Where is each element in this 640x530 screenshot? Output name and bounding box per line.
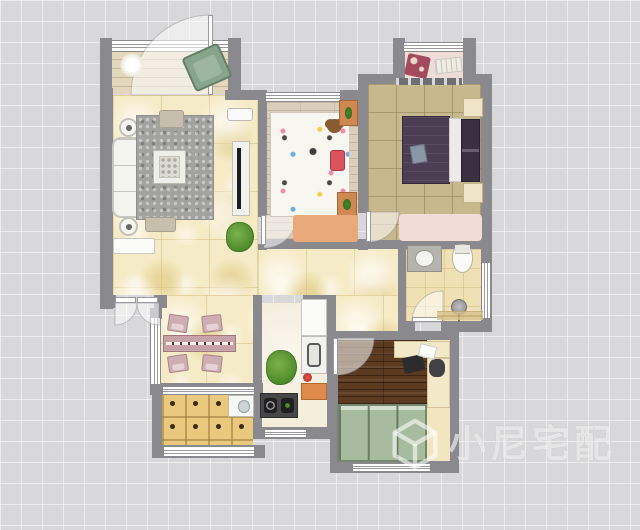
master-bed-pillows bbox=[461, 119, 480, 182]
coffee-table bbox=[153, 150, 186, 184]
dining-chair-4 bbox=[201, 354, 223, 373]
laundry-window bbox=[163, 446, 255, 457]
kids-room-window bbox=[265, 92, 341, 102]
dining-west-window bbox=[150, 317, 161, 385]
wall bbox=[362, 74, 396, 84]
kids-pillow bbox=[330, 150, 345, 171]
wall bbox=[398, 249, 406, 323]
ac-unit bbox=[227, 108, 253, 121]
bathroom-vanity bbox=[407, 245, 442, 272]
master-rug bbox=[399, 214, 482, 241]
ottoman-bottom bbox=[145, 217, 176, 232]
kids-nightstand-top bbox=[339, 100, 358, 126]
watermark-text: 小尼宅配 bbox=[448, 426, 616, 464]
door-leaf bbox=[137, 297, 158, 303]
kitchen-window bbox=[264, 429, 307, 438]
door-leaf bbox=[333, 338, 338, 375]
toilet bbox=[452, 244, 473, 273]
ceiling-light bbox=[120, 53, 144, 77]
door-leaf bbox=[261, 215, 266, 245]
door-swing-arc bbox=[115, 303, 137, 325]
office-chair bbox=[429, 359, 445, 377]
tv-cabinet bbox=[232, 141, 250, 216]
master-nightstand-n bbox=[463, 98, 483, 117]
dining-chair-3 bbox=[167, 354, 189, 374]
master-nightstand-s bbox=[463, 183, 483, 203]
balcony-slider bbox=[162, 386, 255, 395]
door-leaf bbox=[366, 211, 371, 242]
study-window bbox=[352, 463, 431, 472]
dining-chair-2 bbox=[201, 314, 223, 333]
stove bbox=[260, 393, 298, 418]
wall bbox=[450, 331, 459, 473]
dining-table bbox=[163, 335, 236, 352]
kitchen-sink bbox=[301, 336, 327, 374]
wall bbox=[100, 295, 116, 308]
shower-tiles bbox=[437, 311, 483, 320]
wall bbox=[258, 95, 267, 217]
bay-sill bbox=[396, 78, 462, 85]
wardrobe bbox=[337, 404, 427, 462]
book-on-bed bbox=[410, 144, 428, 164]
kids-nightstand-bottom bbox=[337, 192, 357, 217]
floor-plan: 小尼宅配 bbox=[0, 0, 640, 530]
laundry-sink bbox=[228, 395, 254, 417]
dining-chair-1 bbox=[167, 314, 189, 334]
kitchen-cabinet-orange bbox=[301, 383, 327, 400]
kids-rug bbox=[293, 215, 358, 242]
wall bbox=[335, 331, 459, 340]
hallway-floor-2 bbox=[335, 295, 398, 332]
kettle bbox=[303, 373, 312, 382]
ottoman-top bbox=[159, 110, 184, 128]
hallway-floor bbox=[258, 248, 398, 295]
bay-cushion-white bbox=[434, 57, 462, 75]
shoe-cabinet bbox=[113, 238, 155, 254]
bay-window bbox=[403, 42, 464, 52]
wall bbox=[358, 95, 368, 213]
kitchen-cabinet bbox=[301, 299, 327, 336]
door-leaf bbox=[115, 297, 136, 303]
wall bbox=[228, 38, 241, 95]
bay-cushion-floral bbox=[404, 53, 431, 79]
